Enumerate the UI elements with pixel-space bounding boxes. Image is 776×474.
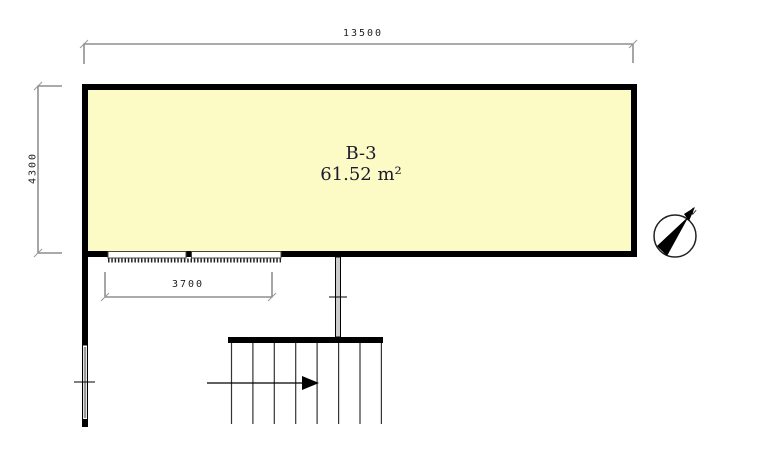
stair-direction-arrow <box>207 376 319 390</box>
window-pane <box>192 252 282 259</box>
dimension-line-top <box>80 40 637 64</box>
dimension-bracket-top <box>84 44 633 64</box>
floorplan-drawing: N <box>0 0 776 474</box>
dimension-label-top: 13500 <box>308 28 418 39</box>
wall-segment <box>82 255 88 345</box>
left-wall-extension <box>74 255 95 427</box>
window-pane <box>108 252 186 259</box>
stair-post <box>329 257 347 337</box>
dimension-bracket-left <box>38 86 62 253</box>
north-compass-icon: N <box>654 206 698 257</box>
room-name: B-3 <box>261 144 461 165</box>
dimension-label-bottom: 3700 <box>138 279 238 290</box>
wall-cap <box>82 419 88 427</box>
stair-landing-edge <box>228 337 383 343</box>
window-bottom-wall <box>108 252 281 261</box>
room-area: 61.52 m² <box>261 165 461 186</box>
room-label: B-3 61.52 m² <box>261 144 461 185</box>
floorplan-canvas: N 13500 4300 3700 B-3 61.52 m² <box>0 0 776 474</box>
dimension-label-left: 4300 <box>28 152 39 184</box>
staircase <box>207 337 383 424</box>
